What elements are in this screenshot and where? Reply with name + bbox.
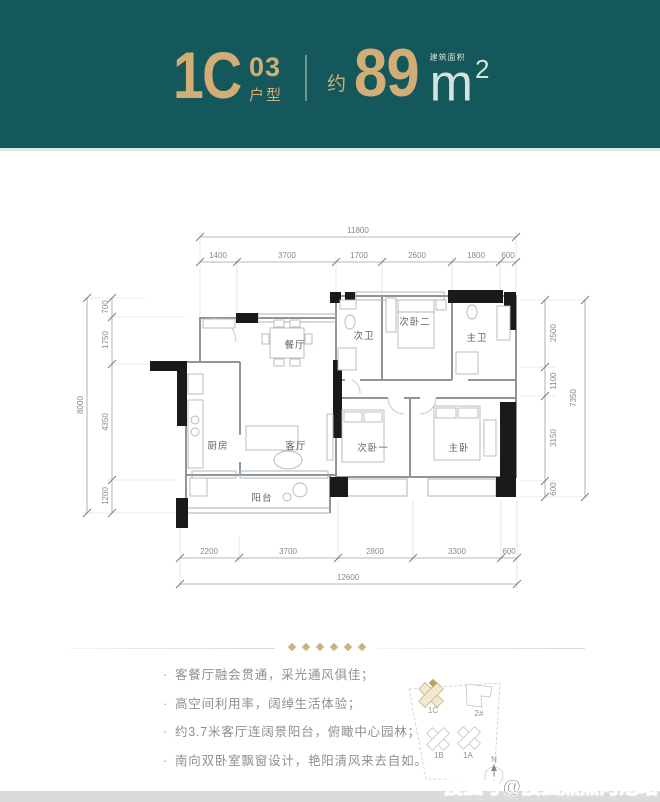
dim-label: 3700: [279, 547, 297, 556]
unit-m-exponent: 2: [475, 54, 489, 84]
building-1a: [458, 727, 481, 750]
divider-line-right: [378, 648, 585, 649]
diamond-icon: [358, 643, 366, 651]
divider-diamonds: [289, 644, 365, 650]
unit-title: 1C 03 户型 约 89 建筑面积 m2: [173, 45, 488, 103]
building-label-1a: 1A: [463, 751, 473, 760]
header-banner: 1C 03 户型 约 89 建筑面积 m2: [0, 0, 660, 151]
dim-label: 3300: [448, 547, 466, 556]
diamond-icon: [344, 643, 352, 651]
approx-label: 约: [327, 75, 346, 94]
feature-item: · 约3.7米客厅连阔景阳台，俯瞰中心园林；: [163, 726, 428, 739]
dim-label: 4350: [101, 413, 110, 431]
floor-plan: 11800 1400 3700 1700 2600 1800 600 2200 …: [70, 222, 595, 614]
watermark: 搜狐号@搜狐焦点河池站: [444, 772, 658, 799]
dim-label: 700: [101, 300, 110, 314]
dim-label: 3150: [549, 429, 558, 447]
dim-label: 600: [501, 251, 515, 260]
bullet-icon: ·: [163, 726, 168, 739]
floor-plan-drawing: 11800 1400 3700 1700 2600 1800 600 2200 …: [70, 222, 595, 614]
building-label-1b: 1B: [434, 751, 444, 760]
unit-type-label: 户型: [249, 88, 283, 103]
dim-label: 1800: [467, 251, 485, 260]
dim-label: 12600: [337, 573, 360, 582]
dim-label: 2800: [366, 547, 384, 556]
diamond-icon: [330, 643, 338, 651]
unit-m-letter: m: [430, 54, 473, 112]
unit-area-value: 89: [354, 45, 419, 103]
dim-label: 600: [549, 482, 558, 496]
room-label-bed2: 次卧二: [399, 316, 431, 328]
unit-code: 1C: [173, 47, 241, 103]
room-label-kitchen: 厨房: [207, 440, 228, 452]
dim-label: 8000: [76, 396, 85, 414]
room-label-master-bed: 主卧: [448, 442, 469, 454]
building-label-2: 2#: [475, 709, 484, 718]
building-1c: [419, 679, 444, 708]
bullet-icon: ·: [163, 755, 168, 768]
room-label-bath2: 次卫: [353, 330, 374, 342]
dim-label: 7350: [569, 389, 578, 407]
building-1b: [427, 728, 450, 751]
dim-label: 1400: [209, 251, 227, 260]
diamond-icon: [288, 643, 296, 651]
feature-text: 约3.7米客厅连阔景阳台，俯瞰中心园林；: [175, 726, 421, 739]
divider-line-left: [70, 648, 275, 649]
building-label-1c: 1C: [428, 706, 438, 715]
feature-item: · 南向双卧室飘窗设计，艳阳清风来去自如。: [163, 755, 428, 768]
dim-label: 1750: [101, 331, 110, 349]
room-label-bed1: 次卧一: [357, 442, 389, 454]
dim-label: 1100: [549, 372, 558, 390]
bullet-icon: ·: [163, 698, 168, 711]
square-meter-unit: m2: [430, 64, 488, 103]
unit-code-stack: 03 户型: [249, 54, 283, 103]
dim-label: 1700: [350, 251, 368, 260]
room-label-balcony: 阳台: [251, 492, 272, 504]
diamond-icon: [316, 643, 324, 651]
furniture: [188, 298, 510, 501]
room-label-dining: 餐厅: [284, 339, 305, 351]
dim-label: 2200: [200, 547, 218, 556]
unit-area-unit: 建筑面积 m2: [430, 54, 488, 103]
dim-label: 2600: [408, 251, 426, 260]
feature-text: 高空间利用率，阔绰生活体验；: [175, 698, 361, 711]
feature-text: 客餐厅融会贯通，采光通风俱佳；: [175, 669, 375, 682]
bullet-icon: ·: [163, 669, 168, 682]
diamond-icon: [302, 643, 310, 651]
dim-label: 1200: [101, 487, 110, 505]
dim-label: 600: [502, 547, 516, 556]
header-divider: [305, 55, 307, 101]
feature-list: · 客餐厅融会贯通，采光通风俱佳； · 高空间利用率，阔绰生活体验； · 约3.…: [163, 669, 428, 783]
dim-label: 11800: [347, 226, 369, 235]
dim-label: 3700: [278, 251, 296, 260]
dim-label: 2500: [549, 324, 558, 342]
feature-item: · 高空间利用率，阔绰生活体验；: [163, 698, 428, 711]
building-2: [466, 684, 492, 707]
room-label-living: 客厅: [285, 440, 306, 452]
feature-item: · 客餐厅融会贯通，采光通风俱佳；: [163, 669, 428, 682]
feature-text: 南向双卧室飘窗设计，艳阳清风来去自如。: [175, 755, 428, 768]
unit-code-number: 03: [249, 54, 281, 81]
north-label: N: [491, 755, 497, 764]
room-label-master-bath: 主卫: [466, 332, 487, 344]
